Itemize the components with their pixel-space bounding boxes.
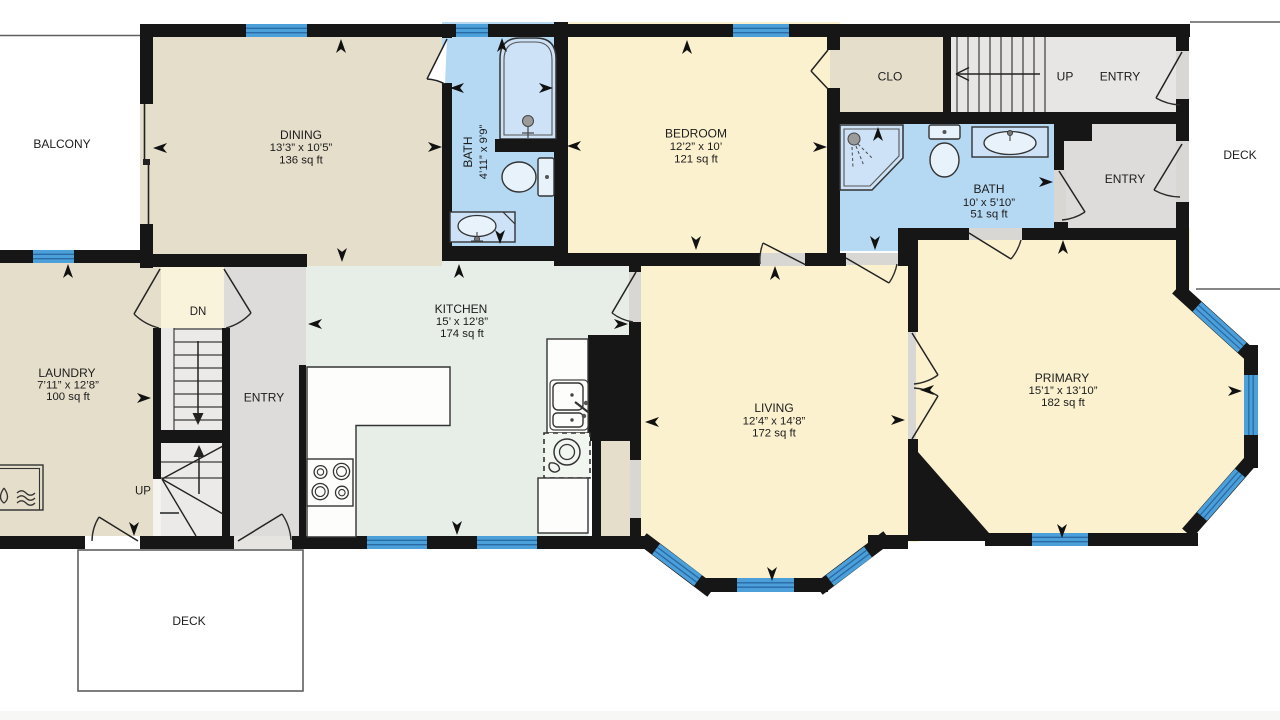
svg-text:DECK: DECK	[172, 614, 205, 628]
svg-text:182 sq ft: 182 sq ft	[1041, 397, 1086, 409]
svg-text:BEDROOM: BEDROOM	[665, 127, 727, 141]
svg-text:12’4” x 14’8”: 12’4” x 14’8”	[743, 416, 806, 428]
svg-text:15’ x 12’8”: 15’ x 12’8”	[436, 316, 488, 328]
svg-text:UP: UP	[135, 486, 151, 498]
svg-text:CLO: CLO	[878, 69, 903, 83]
svg-text:121 sq ft: 121 sq ft	[674, 153, 719, 165]
svg-text:LAUNDRY: LAUNDRY	[38, 366, 95, 380]
svg-text:DN: DN	[190, 306, 207, 318]
svg-text:51 sq ft: 51 sq ft	[970, 209, 1008, 221]
svg-text:7’11” x 12’8”: 7’11” x 12’8”	[37, 380, 99, 392]
svg-text:LIVING: LIVING	[754, 401, 793, 415]
svg-text:DINING: DINING	[280, 128, 322, 142]
svg-text:172 sq ft: 172 sq ft	[752, 428, 797, 440]
svg-text:ENTRY: ENTRY	[1100, 69, 1140, 83]
svg-text:100 sq ft: 100 sq ft	[46, 391, 91, 403]
svg-text:4’11” x 9’9”: 4’11” x 9’9”	[478, 124, 490, 179]
svg-text:10’ x 5’10”: 10’ x 5’10”	[963, 197, 1015, 209]
svg-text:15’1” x 13’10”: 15’1” x 13’10”	[1028, 385, 1097, 397]
svg-text:13’3” x 10’5”: 13’3” x 10’5”	[270, 142, 333, 154]
svg-text:KITCHEN: KITCHEN	[435, 302, 488, 316]
svg-text:174 sq ft: 174 sq ft	[440, 328, 485, 340]
svg-text:ENTRY: ENTRY	[244, 391, 284, 405]
svg-text:12’2” x 10’: 12’2” x 10’	[670, 141, 723, 153]
svg-text:BATH: BATH	[973, 182, 1004, 196]
svg-text:BALCONY: BALCONY	[33, 137, 90, 151]
svg-text:ENTRY: ENTRY	[1105, 172, 1145, 186]
svg-text:136 sq ft: 136 sq ft	[279, 155, 324, 167]
svg-text:DECK: DECK	[1223, 148, 1256, 162]
svg-text:PRIMARY: PRIMARY	[1035, 371, 1089, 385]
svg-text:UP: UP	[1057, 69, 1074, 83]
svg-text:BATH: BATH	[461, 136, 475, 167]
